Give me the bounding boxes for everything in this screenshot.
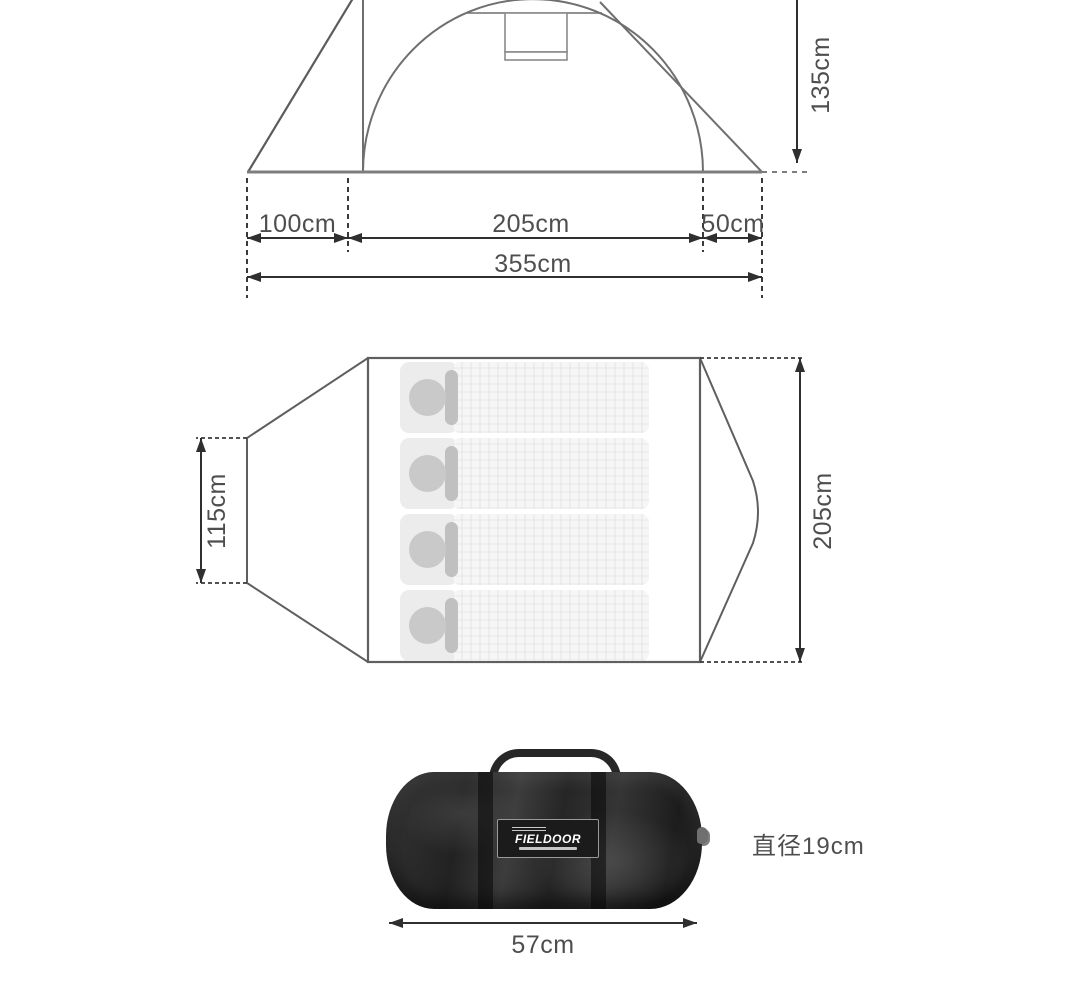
sleeping-bag-head-circle	[409, 455, 446, 492]
carry-bag-strap-left	[478, 772, 493, 909]
tent-spec-sheet: 100cm 205cm 50cm 355cm 135cm	[0, 0, 1080, 985]
carry-bag-zipper-pull	[697, 827, 708, 844]
dim-label-height: 135cm	[808, 25, 834, 125]
rear-flap-outline	[700, 358, 758, 662]
dim-label-rear-width: 50cm	[695, 211, 771, 237]
brand-logo-text: FIELDOOR	[515, 833, 581, 845]
sleeping-bag-mat	[452, 590, 649, 661]
top-vent-band	[505, 52, 567, 60]
sleeping-bag-head-circle	[409, 531, 446, 568]
sleeping-bag-mat	[452, 438, 649, 509]
vestibule-outline	[247, 358, 368, 662]
sleeping-bag-hood	[445, 598, 458, 653]
brand-tagline-bar	[519, 847, 577, 850]
sleeping-bag-head-circle	[409, 607, 446, 644]
sleeping-bag-3	[400, 514, 649, 585]
carry-bag-brand-patch: FIELDOOR	[497, 819, 599, 858]
brand-logo-stripes	[512, 827, 546, 831]
dim-label-front-width: 100cm	[247, 211, 348, 237]
rear-flap-line	[600, 2, 762, 172]
sleeping-bag-mat	[452, 362, 649, 433]
sleeping-bag-4	[400, 590, 649, 661]
vestibule-guy-line	[248, 0, 364, 172]
sleeping-bag-1	[400, 362, 649, 433]
dim-label-inner-width: 205cm	[426, 211, 636, 237]
sleeping-bag-mat	[452, 514, 649, 585]
sleeping-bag-hood	[445, 370, 458, 425]
top-vent-window	[505, 13, 567, 52]
dim-label-floor-length: 205cm	[810, 461, 836, 561]
dim-label-vestibule-depth: 115cm	[204, 461, 230, 561]
dim-label-bag-length: 57cm	[468, 932, 618, 958]
sleeping-bag-hood	[445, 522, 458, 577]
dim-label-bag-diameter: 直径19cm	[752, 826, 865, 861]
sleeping-bag-head-circle	[409, 379, 446, 416]
sleeping-bag-2	[400, 438, 649, 509]
dim-label-total-width: 355cm	[428, 251, 638, 277]
sleeping-bag-hood	[445, 446, 458, 501]
